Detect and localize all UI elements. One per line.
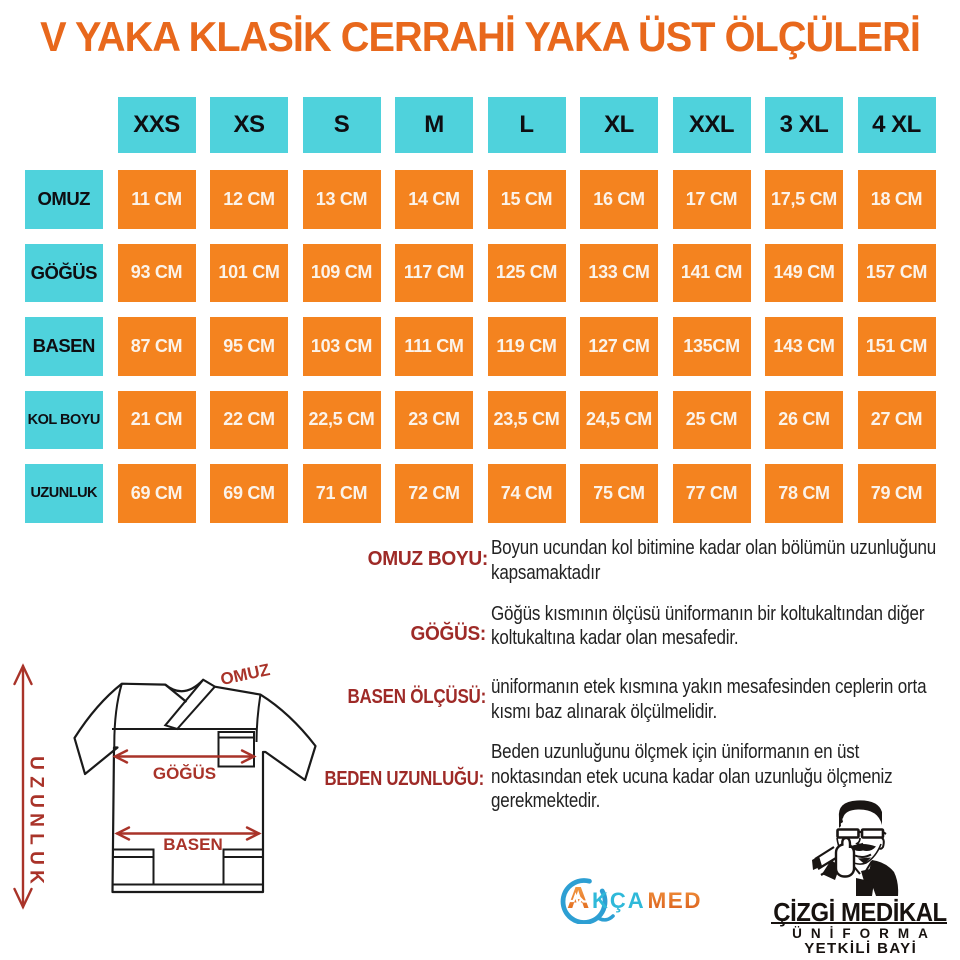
- svg-text:N: N: [26, 813, 47, 827]
- svg-text:MED: MED: [648, 888, 703, 913]
- svg-text:OMUZ: OMUZ: [219, 660, 272, 689]
- svg-text:A: A: [567, 880, 589, 915]
- svg-text:BASEN: BASEN: [163, 835, 223, 854]
- svg-text:U: U: [26, 851, 47, 865]
- svg-text:K: K: [26, 870, 47, 884]
- svg-text:KÇA: KÇA: [592, 888, 646, 913]
- svg-text:U: U: [26, 794, 47, 808]
- svg-text:L: L: [26, 833, 47, 845]
- svg-text:Z: Z: [26, 776, 47, 788]
- svg-text:U: U: [26, 756, 47, 770]
- svg-text:GÖĞÜS: GÖĞÜS: [153, 764, 216, 783]
